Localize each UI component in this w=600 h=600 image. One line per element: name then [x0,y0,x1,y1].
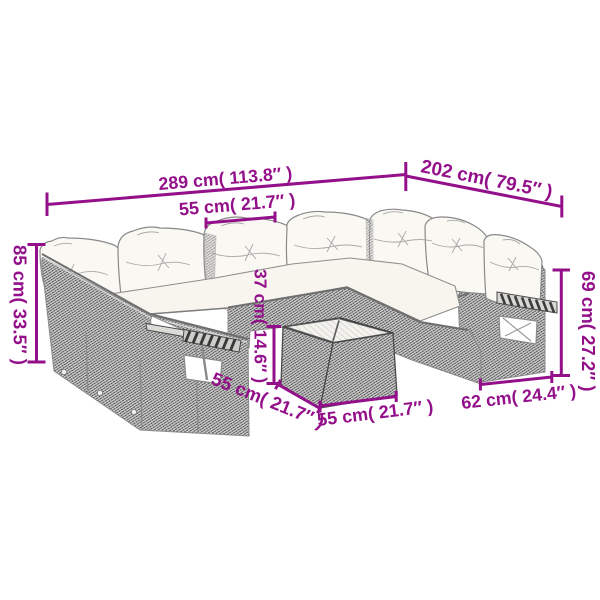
svg-text:85 cm( 33.5″ ): 85 cm( 33.5″ ) [10,245,31,365]
svg-text:69 cm( 27.2″ ): 69 cm( 27.2″ ) [578,271,599,392]
svg-text:37 cm( 14.6″ ): 37 cm( 14.6″ ) [251,269,271,383]
